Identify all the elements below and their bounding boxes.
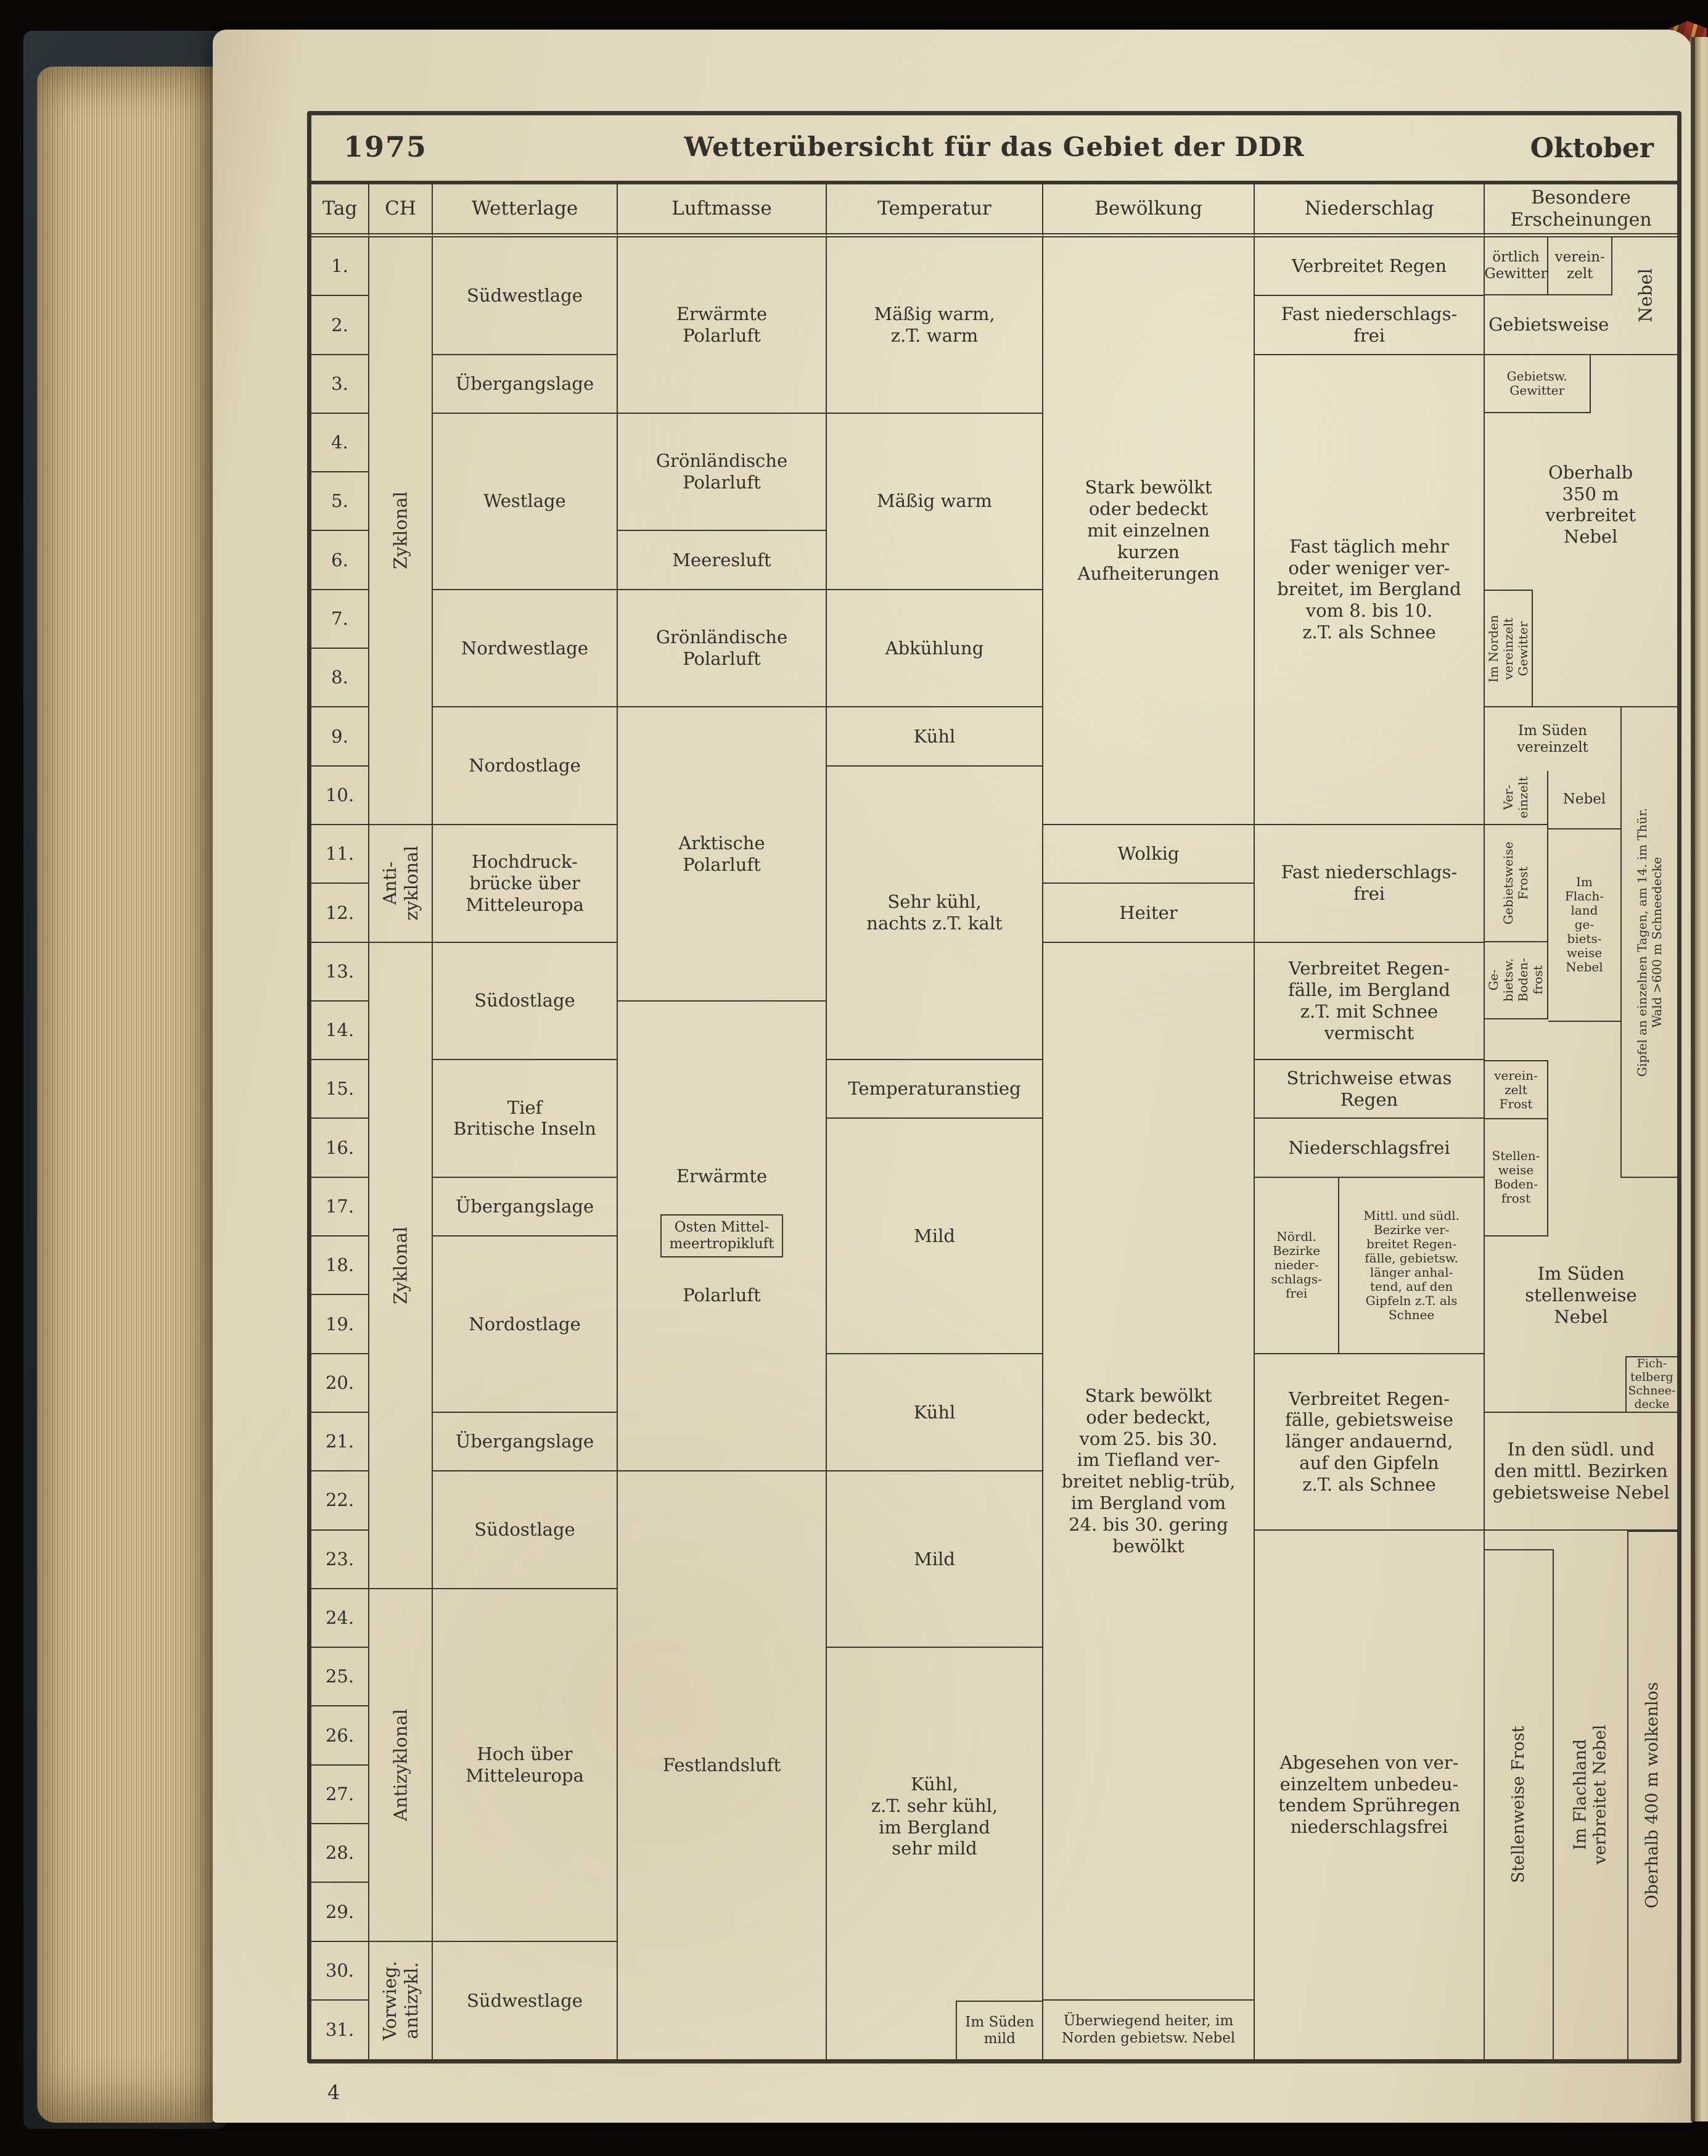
col-header-temperatur: Temperatur	[827, 184, 1043, 237]
besondere-box: verein- zelt Frost	[1485, 1060, 1548, 1119]
besondere-cell-rows24-31: Stellenweise Frost Im Flachland verbreit…	[1485, 1531, 1677, 2060]
day-cell: 24.	[311, 1589, 369, 1648]
ch-label: Anti- zyklonal	[379, 846, 422, 921]
day-cell: 20.	[311, 1354, 369, 1413]
ch-label: Vorwieg. antizykl.	[379, 1961, 422, 2041]
besondere-rot-area: Nebel	[1614, 237, 1677, 354]
day-cell: 6.	[311, 531, 369, 590]
besondere-cell-rows3-8: Gebietsw. Gewitter Oberhalb 350 m verbre…	[1485, 355, 1677, 708]
day-cell: 8.	[311, 649, 369, 707]
day-cell: 30.	[311, 1942, 369, 2001]
besondere-rot-box: Stellenweise Frost	[1485, 1549, 1554, 2060]
wetterlage-cell: Südwestlage	[433, 237, 618, 355]
besondere-box: Gebietsw. Gewitter	[1485, 355, 1591, 414]
wetterlage-cell: Südostlage	[433, 1471, 618, 1589]
besondere-box: Stellen- weise Boden- frost	[1485, 1119, 1548, 1236]
wetterlage-cell: Tief Britische Inseln	[433, 1060, 618, 1178]
col-header-niederschlag: Niederschlag	[1255, 184, 1485, 237]
ch-cell: Zyklonal	[369, 943, 433, 1589]
niederschlag-cell: Fast niederschlags- frei	[1255, 296, 1485, 355]
besondere-rot-label: Stellenweise Frost	[1509, 1726, 1529, 1883]
bewoelkung-cell: Stark bewölkt oder bedeckt, vom 25. bis …	[1043, 943, 1255, 2001]
page-number: 4	[327, 2081, 340, 2104]
ch-cell: Anti- zyklonal	[369, 825, 433, 943]
day-cell: 10.	[311, 767, 369, 825]
day-cell: 9.	[311, 707, 369, 766]
temperatur-cell: Sehr kühl, nachts z.T. kalt	[827, 767, 1043, 1060]
besondere-cell-rows21-23: In den südl. und den mittl. Bezirken geb…	[1485, 1413, 1677, 1531]
besondere-box: Im Flach- land ge- biets- weise Nebel	[1548, 829, 1620, 1022]
col-header-ch: CH	[369, 184, 433, 237]
day-cell: 1.	[311, 237, 369, 296]
day-cell: 23.	[311, 1531, 369, 1589]
niederschlag-south: Mittl. und südl. Bezirke ver- breitet Re…	[1339, 1178, 1484, 1353]
niederschlag-cell: Fast niederschlags- frei	[1255, 825, 1485, 943]
page-title: Wetterübersicht für das Gebiet der DDR	[684, 132, 1305, 164]
besondere-rot-label: Nebel	[1635, 269, 1656, 323]
book-gutter	[1691, 37, 1695, 2121]
ch-cell: Zyklonal	[369, 237, 433, 825]
wetterlage-cell: Hochdruck- brücke über Mitteleuropa	[433, 825, 618, 943]
besondere-rot-box: Gipfel an einzelnen Tagen, am 14. im Thü…	[1620, 707, 1677, 1177]
besondere-cell-rows9-17: Gipfel an einzelnen Tagen, am 14. im Thü…	[1485, 707, 1677, 1236]
besondere-box: örtlich Gewitter	[1485, 237, 1548, 295]
col-header-tag: Tag	[311, 184, 369, 237]
day-cell: 22.	[311, 1471, 369, 1530]
day-cell: 16.	[311, 1119, 369, 1177]
luftmasse-cell: Meeresluft	[618, 531, 827, 590]
ch-label: Antizyklonal	[390, 1709, 411, 1821]
day-cell: 4.	[311, 414, 369, 472]
wetterlage-cell: Übergangslage	[433, 1178, 618, 1236]
besondere-rot-label: Gipfel an einzelnen Tagen, am 14. im Thü…	[1635, 808, 1664, 1077]
luftmasse-text: Polarluft	[683, 1285, 761, 1306]
temperatur-cell: Mild	[827, 1471, 1043, 1648]
luftmasse-cell: Grönländische Polarluft	[618, 590, 827, 708]
temperatur-cell: Mäßig warm, z.T. warm	[827, 237, 1043, 414]
year-label: 1975	[343, 130, 427, 164]
luftmasse-cell: Festlandsluft	[618, 1471, 827, 2059]
temperatur-cell: Kühl	[827, 1354, 1043, 1472]
col-header-wetterlage: Wetterlage	[433, 184, 618, 237]
day-cell: 13.	[311, 943, 369, 1002]
day-cell: 31.	[311, 2001, 369, 2059]
wetterlage-cell: Westlage	[433, 414, 618, 590]
bewoelkung-cell: Wolkig	[1043, 825, 1255, 884]
besondere-text: Gebietsweise	[1485, 295, 1612, 353]
day-cell: 14.	[311, 1002, 369, 1060]
temperatur-text: Kühl, z.T. sehr kühl, im Bergland sehr m…	[871, 1774, 998, 1859]
niederschlag-cell: Niederschlagsfrei	[1255, 1119, 1485, 1177]
besondere-rot-box: Gebietsweise Frost	[1485, 825, 1548, 942]
month-label: Oktober	[1530, 133, 1654, 165]
niederschlag-cell: Verbreitet Regen- fälle, im Bergland z.T…	[1255, 943, 1485, 1061]
besondere-rot-box: Ge- bietsw. Boden- frost	[1485, 942, 1548, 1019]
besondere-box: Fich- telberg Schnee- decke	[1625, 1356, 1677, 1412]
luftmasse-cell: Erwärmte Osten Mittel- meertropikluft Po…	[618, 1002, 827, 1471]
niederschlag-cell: Verbreitet Regen	[1255, 237, 1485, 296]
book-scan: 1975 Wetterübersicht für das Gebiet der …	[0, 0, 1708, 2156]
wetterlage-cell: Nordostlage	[433, 707, 618, 825]
temperatur-cell: Mild	[827, 1119, 1043, 1354]
wetterlage-cell: Übergangslage	[433, 355, 618, 414]
wetterlage-cell: Südostlage	[433, 943, 618, 1061]
day-cell: 5.	[311, 472, 369, 531]
besondere-box: verein- zelt	[1548, 237, 1613, 295]
luftmasse-note-box: Osten Mittel- meertropikluft	[660, 1214, 782, 1257]
temperatur-cell: Abkühlung	[827, 590, 1043, 708]
besondere-rot-label: Im Norden vereinzelt Gewitter	[1486, 615, 1530, 683]
besondere-rot-label: Ge- bietsw. Boden- frost	[1486, 958, 1545, 1002]
bewoelkung-cell: Überwiegend heiter, im Norden gebietsw. …	[1043, 2001, 1255, 2059]
col-header-luftmasse: Luftmasse	[618, 184, 827, 237]
weather-table: 1975 Wetterübersicht für das Gebiet der …	[307, 111, 1681, 2063]
besondere-rot-label: Oberhalb 400 m wolkenlos	[1643, 1682, 1662, 1909]
niederschlag-split-cell: Nördl. Bezirke nieder- schlags- frei Mit…	[1255, 1178, 1485, 1354]
besondere-cell-rows1-2: örtlich Gewitter verein- zelt Gebietswei…	[1485, 237, 1677, 355]
besondere-rot-label: Im Flachland verbreitet Nebel	[1570, 1725, 1611, 1865]
wetterlage-cell: Übergangslage	[433, 1413, 618, 1471]
page-edges-stack	[37, 67, 213, 2123]
niederschlag-cell: Verbreitet Regen- fälle, gebietsweise lä…	[1255, 1354, 1485, 1531]
bewoelkung-cell: Stark bewölkt oder bedeckt mit einzelnen…	[1043, 237, 1255, 825]
niederschlag-north: Nördl. Bezirke nieder- schlags- frei	[1255, 1178, 1339, 1353]
ch-cell: Antizyklonal	[369, 1589, 433, 1942]
day-cell: 17.	[311, 1178, 369, 1236]
table-title-row: 1975 Wetterübersicht für das Gebiet der …	[311, 115, 1677, 184]
temperatur-cell: Kühl, z.T. sehr kühl, im Bergland sehr m…	[827, 1648, 1043, 2059]
day-cell: 2.	[311, 296, 369, 355]
temperatur-cell: Temperaturanstieg	[827, 1060, 1043, 1119]
luftmasse-cell: Erwärmte Polarluft	[618, 237, 827, 414]
luftmasse-text: Erwärmte	[676, 1166, 767, 1187]
bewoelkung-cell: Heiter	[1043, 884, 1255, 942]
wetterlage-cell: Nordwestlage	[433, 590, 618, 708]
besondere-box: Nebel	[1548, 771, 1620, 829]
niederschlag-cell: Strichweise etwas Regen	[1255, 1060, 1485, 1119]
besondere-rot-box: Im Norden vereinzelt Gewitter	[1485, 590, 1533, 707]
day-cell: 7.	[311, 590, 369, 649]
ch-cell: Vorwieg. antizykl.	[369, 1942, 433, 2060]
day-cell: 19.	[311, 1295, 369, 1354]
niederschlag-cell: Fast täglich mehr oder weniger ver- brei…	[1255, 355, 1485, 825]
day-cell: 27.	[311, 1766, 369, 1824]
luftmasse-cell: Arktische Polarluft	[618, 707, 827, 1001]
luftmasse-cell: Grönländische Polarluft	[618, 414, 827, 532]
wetterlage-cell: Südwestlage	[433, 1942, 618, 2060]
wetterlage-cell: Hoch über Mitteleuropa	[433, 1589, 618, 1942]
day-cell: 21.	[311, 1413, 369, 1471]
col-header-besondere: Besondere Erscheinungen	[1485, 184, 1677, 237]
besondere-text: Im Süden vereinzelt	[1485, 707, 1620, 771]
day-cell: 26.	[311, 1706, 369, 1765]
besondere-rot-area: Im Flachland verbreitet Nebel	[1554, 1531, 1627, 2060]
ch-label: Zyklonal	[390, 1227, 411, 1304]
day-cell: 12.	[311, 884, 369, 942]
besondere-rot-label: Ver- einzelt	[1501, 776, 1530, 818]
wetterlage-cell: Nordostlage	[433, 1236, 618, 1413]
col-header-bewoelkung: Bewölkung	[1043, 184, 1255, 237]
besondere-rot-box: Oberhalb 400 m wolkenlos	[1627, 1531, 1677, 2060]
next-page-edge	[1695, 37, 1708, 2121]
day-cell: 15.	[311, 1060, 369, 1119]
besondere-text: Oberhalb 350 m verbreitet Nebel	[1504, 413, 1677, 596]
temperatur-cell: Kühl	[827, 707, 1043, 766]
niederschlag-cell: Abgesehen von ver- einzeltem unbedeu- te…	[1255, 1531, 1485, 2060]
besondere-cell-rows18-19: Im Süden stellenweise Nebel	[1485, 1236, 1677, 1354]
day-cell: 11.	[311, 825, 369, 884]
day-cell: 18.	[311, 1236, 369, 1295]
besondere-cell-row20: Fich- telberg Schnee- decke	[1485, 1354, 1677, 1413]
day-cell: 3.	[311, 355, 369, 414]
besondere-rot-label: Gebietsweise Frost	[1501, 842, 1530, 925]
day-cell: 29.	[311, 1883, 369, 1941]
temperatur-subcell: Im Süden mild	[956, 2001, 1042, 2059]
day-cell: 25.	[311, 1648, 369, 1706]
besondere-rot-box: Ver- einzelt	[1485, 771, 1548, 825]
temperatur-cell: Mäßig warm	[827, 414, 1043, 590]
ch-label: Zyklonal	[390, 492, 411, 569]
day-cell: 28.	[311, 1824, 369, 1883]
book-page: 1975 Wetterübersicht für das Gebiet der …	[213, 30, 1694, 2123]
